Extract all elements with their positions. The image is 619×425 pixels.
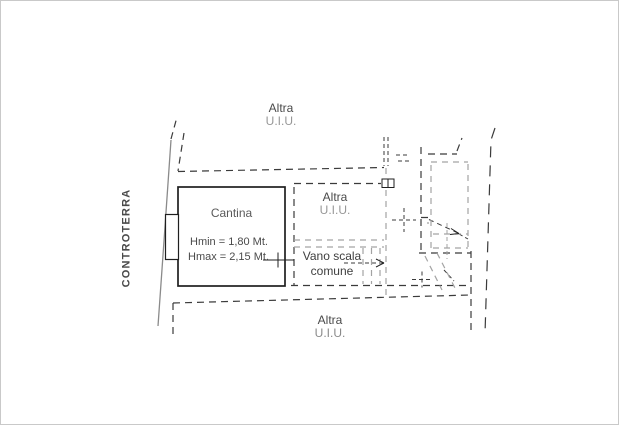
wall-opening: [166, 215, 179, 260]
label-vano-scala-comune: Vano scala comune: [292, 249, 372, 279]
stair-enclosure-top-tick: [457, 138, 462, 151]
label-vano-scala-line1: Vano scala: [292, 249, 372, 264]
winder-direction-cont: [459, 234, 468, 239]
winder-direction-line: [429, 220, 459, 234]
label-vano-scala-line2: comune: [292, 264, 372, 279]
stair-flight-diagonal-2: [437, 253, 455, 288]
boundary-diagonal-top-a: [171, 117, 177, 139]
label-height-max: Hmax = 2,15 Mt.: [188, 250, 269, 264]
stairwell-wall-notch: [421, 218, 428, 224]
right-outer-boundary: [485, 128, 495, 334]
label-altra-top-line2: U.I.U.: [250, 115, 312, 128]
dashed-boundary-group: [171, 117, 495, 337]
label-height-min: Hmin = 1,80 Mt.: [190, 235, 268, 249]
label-controterra: CONTROTERRA: [121, 181, 137, 296]
boundary-bottom: [173, 295, 471, 303]
label-altra-bottom-line2: U.I.U.: [299, 327, 361, 340]
label-altra-mid-line2: U.I.U.: [304, 204, 366, 217]
boundary-diagonal-top-b: [178, 133, 184, 171]
boundary-top: [178, 168, 384, 172]
label-altra-uiu-top: Altra U.I.U.: [250, 102, 312, 128]
floor-plan-canvas: CONTROTERRA Altra U.I.U. Cantina Hmin = …: [0, 0, 619, 425]
label-cantina: Cantina: [178, 207, 285, 220]
label-altra-uiu-middle: Altra U.I.U.: [304, 191, 366, 217]
label-altra-uiu-bottom: Altra U.I.U.: [299, 314, 361, 340]
